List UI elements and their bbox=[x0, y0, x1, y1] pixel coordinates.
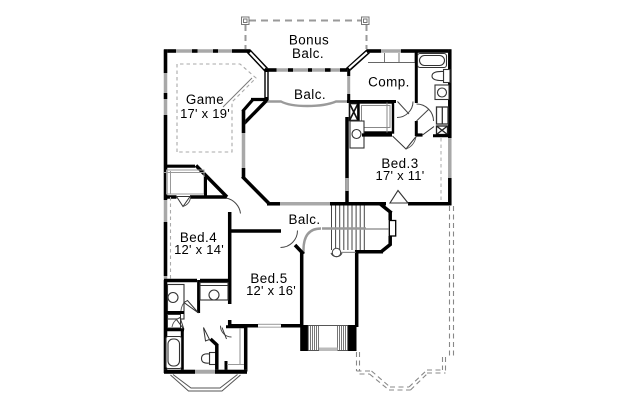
svg-text:17' x 11': 17' x 11' bbox=[376, 168, 425, 183]
svg-text:Game: Game bbox=[186, 92, 224, 107]
svg-text:Balc.: Balc. bbox=[292, 46, 324, 61]
svg-text:Balc.: Balc. bbox=[294, 87, 326, 102]
svg-text:17' x 19': 17' x 19' bbox=[180, 106, 230, 121]
svg-text:12' x 14': 12' x 14' bbox=[174, 242, 224, 257]
svg-text:Comp.: Comp. bbox=[368, 75, 410, 90]
svg-text:12' x 16': 12' x 16' bbox=[246, 283, 296, 298]
svg-text:Balc.: Balc. bbox=[288, 212, 320, 227]
